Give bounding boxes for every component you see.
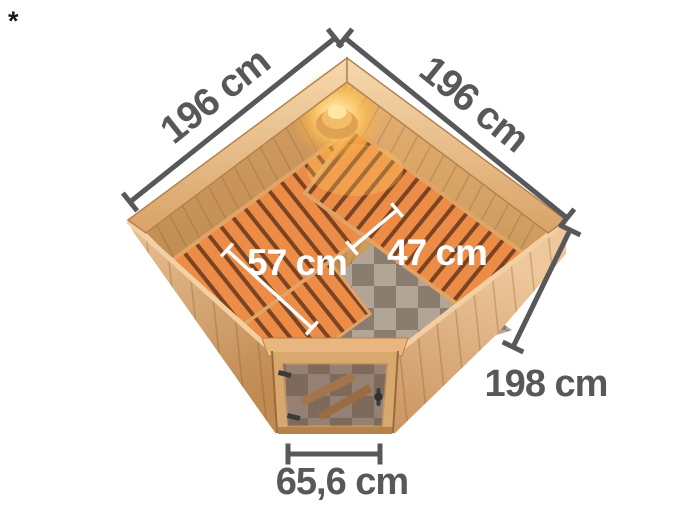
sauna-dimension-diagram: 196 cm 196 cm 198 cm 65,6 cm 57 cm 47 cm… xyxy=(0,0,700,525)
dimension-line-656-door xyxy=(288,446,380,462)
door-assembly xyxy=(262,338,408,434)
lamp-shade-top xyxy=(328,105,347,119)
door-handle-knob-icon xyxy=(374,393,382,401)
dimension-label-198-height: 198 cm xyxy=(485,363,608,405)
footnote-asterisk: * xyxy=(8,6,19,36)
dimension-label-656-door: 65,6 cm xyxy=(276,461,408,503)
dimension-label-47-bench: 47 cm xyxy=(387,232,487,273)
door-threshold xyxy=(276,427,394,434)
sauna-illustration: 196 cm 196 cm 198 cm 65,6 cm 57 cm 47 cm… xyxy=(0,0,700,525)
dimension-label-57-bench: 57 cm xyxy=(247,242,347,283)
